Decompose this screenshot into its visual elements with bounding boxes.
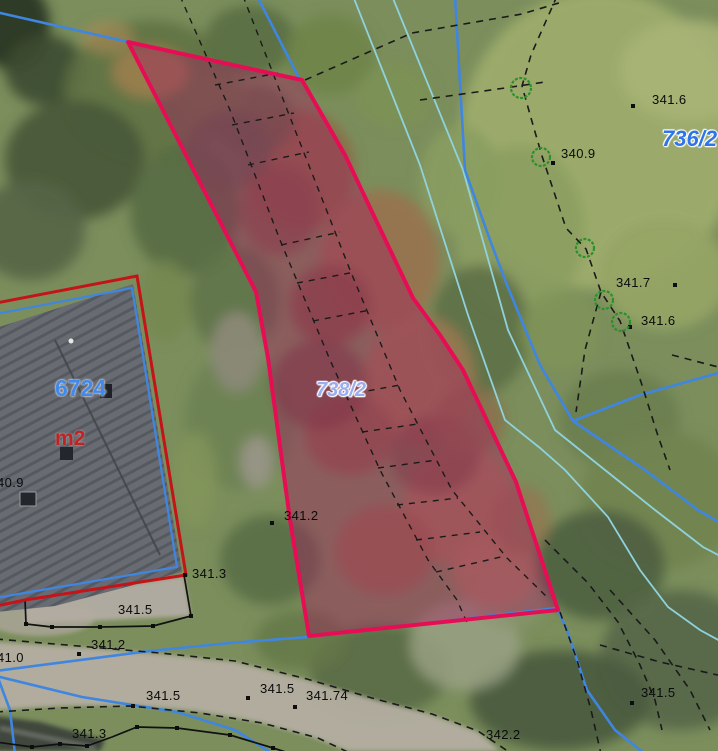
aerial-map-canvas: [0, 0, 718, 751]
map-viewport[interactable]: 341.6 340.9 341.7 341.6 40.9 341.2 341.3…: [0, 0, 718, 751]
dashed-east-edge: [672, 355, 718, 368]
